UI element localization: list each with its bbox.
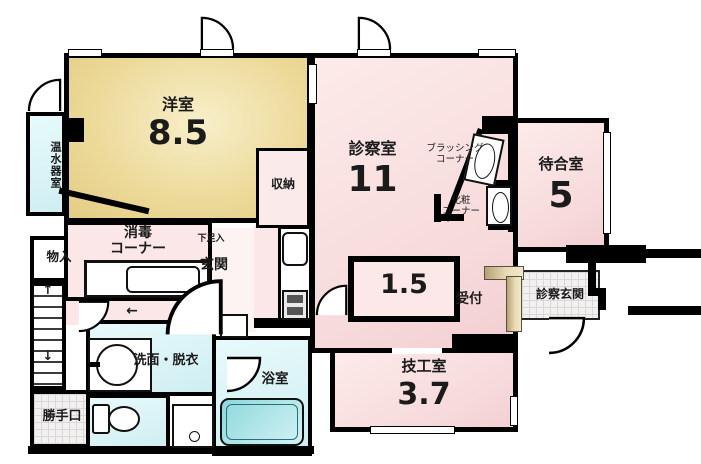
approach-wall-top (646, 249, 701, 258)
room-label-lab: 技工室 (336, 358, 512, 375)
room-label-exam: 診察室 (315, 140, 430, 158)
makeup-sink-icon (486, 186, 512, 226)
approach-wall-bottom (628, 306, 701, 315)
door-arc-icon (548, 316, 586, 354)
wall-stub (64, 118, 84, 142)
arrow-left-icon: ← (118, 304, 146, 320)
window (478, 49, 516, 57)
sink-bowl (492, 192, 509, 223)
label-washroom: 洗面・脱衣 (114, 354, 218, 369)
washing-machine-drain (189, 431, 200, 442)
label-back-door: 勝手口 (32, 410, 92, 425)
room-size-lab: 3.7 (336, 378, 512, 412)
stove-icon (282, 290, 308, 320)
label-closet: 収納 (258, 178, 308, 191)
room-size-1-5: 1.5 (354, 270, 454, 300)
room-label-waiting: 待合室 (516, 156, 606, 173)
label-genkan: 玄関 (184, 258, 244, 274)
room-size-western: 8.5 (118, 114, 238, 152)
door-arc-icon (28, 78, 62, 112)
arrow-up-icon: ↑ (34, 284, 62, 299)
washing-machine-icon (172, 404, 214, 448)
stove-burner (287, 307, 303, 315)
door-leaf (200, 49, 234, 57)
room-size-exam: 11 (315, 160, 430, 200)
door-arc-icon (78, 300, 110, 332)
door-leaf (357, 49, 391, 57)
stove-burner (287, 295, 303, 303)
bathtub-icon (220, 398, 304, 446)
door-arc-icon (357, 16, 391, 50)
toilet-icon (108, 406, 140, 432)
window (308, 64, 317, 104)
label-bathroom: 浴室 (240, 372, 310, 387)
label-brushing-corner: ブラッシングコーナー (416, 144, 494, 165)
exterior-wall-corner (566, 245, 646, 263)
wall-stub (452, 334, 516, 348)
door-opening (392, 348, 442, 354)
faucet-icon (88, 362, 100, 367)
room-size-waiting: 5 (516, 176, 606, 216)
room-label-water-heater: 温水器室 (31, 120, 61, 210)
door-arc-icon (200, 16, 234, 50)
arrow-down-icon: ↓ (34, 350, 62, 365)
kitchen-sink-icon (282, 232, 308, 266)
window (68, 49, 102, 57)
wall-stub (598, 292, 606, 310)
door-arc-icon (166, 278, 224, 336)
label-makeup-corner: 化粧コーナー (436, 196, 486, 217)
label-clinic-entrance: 診察玄関 (521, 288, 599, 301)
room-label-western: 洋室 (118, 96, 238, 114)
bottom-exterior-wall (28, 446, 314, 454)
floor-plan: 洋室 8.5 温水器室 診察室 11 待合室 5 ブラッシングコーナー 化粧コー… (0, 0, 701, 464)
cabinet (220, 314, 248, 338)
reception-counter (506, 276, 522, 332)
label-shoe-cabinet: 下足入 (186, 234, 236, 244)
window (370, 426, 455, 434)
bathtub-inner (226, 404, 298, 440)
door-arc-icon (316, 284, 348, 316)
corridor-mid (254, 226, 280, 322)
